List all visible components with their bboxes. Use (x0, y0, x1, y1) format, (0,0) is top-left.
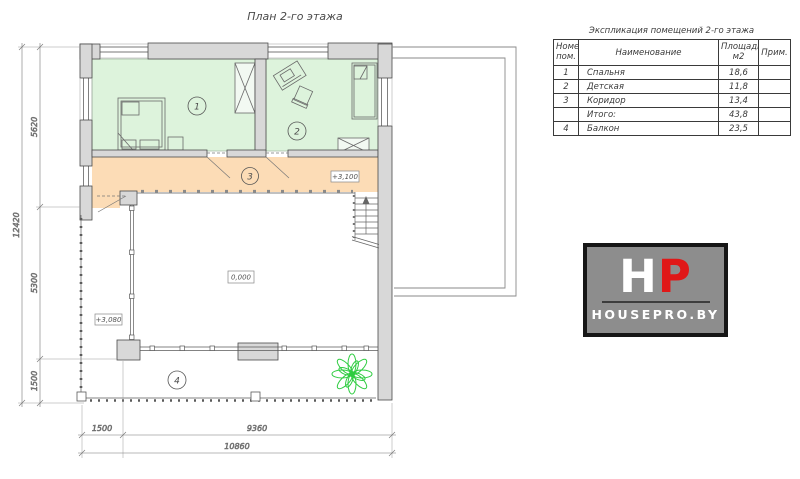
table-row: 3 Коридор 13,4 (554, 94, 791, 108)
svg-text:5300: 5300 (30, 273, 39, 293)
svg-text:3: 3 (247, 173, 253, 183)
logo-divider (602, 301, 710, 303)
level-mark-first-floor: 0,000 (228, 271, 254, 283)
roof-outline (392, 47, 516, 296)
level-mark-corridor: +3,100 (331, 171, 359, 182)
svg-text:5620: 5620 (30, 117, 39, 137)
dim-left-outer: 12420 (12, 43, 25, 407)
svg-text:9360: 9360 (247, 424, 267, 433)
table-row: 1 Спальня 18,6 (554, 66, 791, 80)
table-row: 4 Балкон 23,5 (554, 122, 791, 136)
header-area: Площадь,м2 (719, 40, 759, 66)
balcony-railings (77, 215, 376, 401)
staircase (352, 192, 379, 248)
table-row-total: Итого: 43,8 (554, 108, 791, 122)
svg-text:0,000: 0,000 (231, 274, 252, 282)
dim-left-inner: 5620 5300 1500 (30, 43, 43, 407)
logo-site-text: HOUSEPRO.BY (591, 307, 719, 322)
wardrobe-bedroom (235, 63, 255, 113)
logo-letter-p: P (658, 250, 692, 303)
room-label-4: 4 (168, 371, 186, 389)
logo-letter-h: H (619, 250, 658, 303)
window-left-lower (84, 166, 89, 186)
svg-text:1500: 1500 (92, 424, 112, 433)
header-note: Прим. (759, 40, 791, 66)
window-right (378, 78, 392, 126)
floor-plan: 1 2 3 4 +3,100 0,000 (0, 0, 540, 479)
svg-text:4: 4 (174, 377, 180, 387)
svg-text:+3,080: +3,080 (96, 316, 122, 324)
svg-text:+3,100: +3,100 (332, 173, 358, 181)
header-room-number: Номерпом. (554, 40, 579, 66)
corridor-fill-left (92, 192, 120, 208)
explication-table: Экспликация помещений 2-го этажа Номерпо… (553, 26, 790, 136)
level-mark-balcony: +3,080 (95, 314, 122, 325)
room-children-fill (266, 59, 378, 151)
logo-letters: HP (619, 256, 692, 299)
housepro-logo: HP HOUSEPRO.BY (583, 243, 728, 337)
plant-icon (332, 354, 372, 394)
svg-text:1: 1 (194, 103, 200, 113)
dim-bottom-outer: 10860 (78, 442, 396, 456)
table-header-row: Номерпом. Наименование Площадь,м2 Прим. (554, 40, 791, 66)
svg-text:1500: 1500 (30, 371, 39, 391)
svg-text:10860: 10860 (224, 442, 249, 451)
window-top-right (268, 44, 328, 58)
window-left-upper (80, 78, 92, 120)
svg-text:12420: 12420 (12, 212, 21, 237)
table-title: Экспликация помещений 2-го этажа (553, 26, 790, 36)
header-name: Наименование (579, 40, 719, 66)
svg-text:2: 2 (294, 128, 300, 138)
dim-bottom-inner: 1500 9360 (78, 424, 396, 438)
table-row: 2 Детская 11,8 (554, 80, 791, 94)
window-top-left (100, 44, 148, 58)
drawing-sheet: План 2-го этажа (0, 0, 800, 479)
